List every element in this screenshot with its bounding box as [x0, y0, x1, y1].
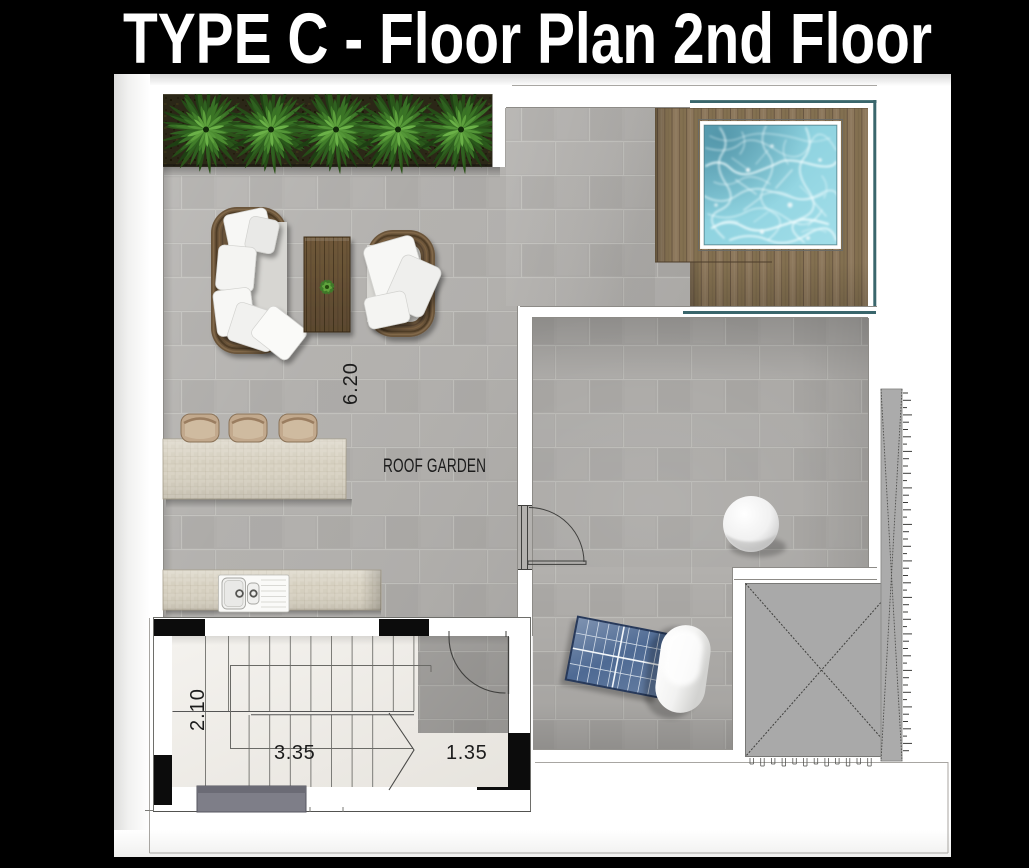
svg-text:1.35: 1.35 [446, 742, 487, 764]
svg-text:ROOF GARDEN: ROOF GARDEN [383, 455, 486, 477]
svg-text:6.20: 6.20 [340, 362, 362, 405]
svg-text:2.10: 2.10 [187, 688, 209, 731]
svg-text:TYPE C - Floor Plan 2nd Floor: TYPE C - Floor Plan 2nd Floor [123, 0, 932, 79]
svg-text:3.35: 3.35 [274, 742, 315, 764]
